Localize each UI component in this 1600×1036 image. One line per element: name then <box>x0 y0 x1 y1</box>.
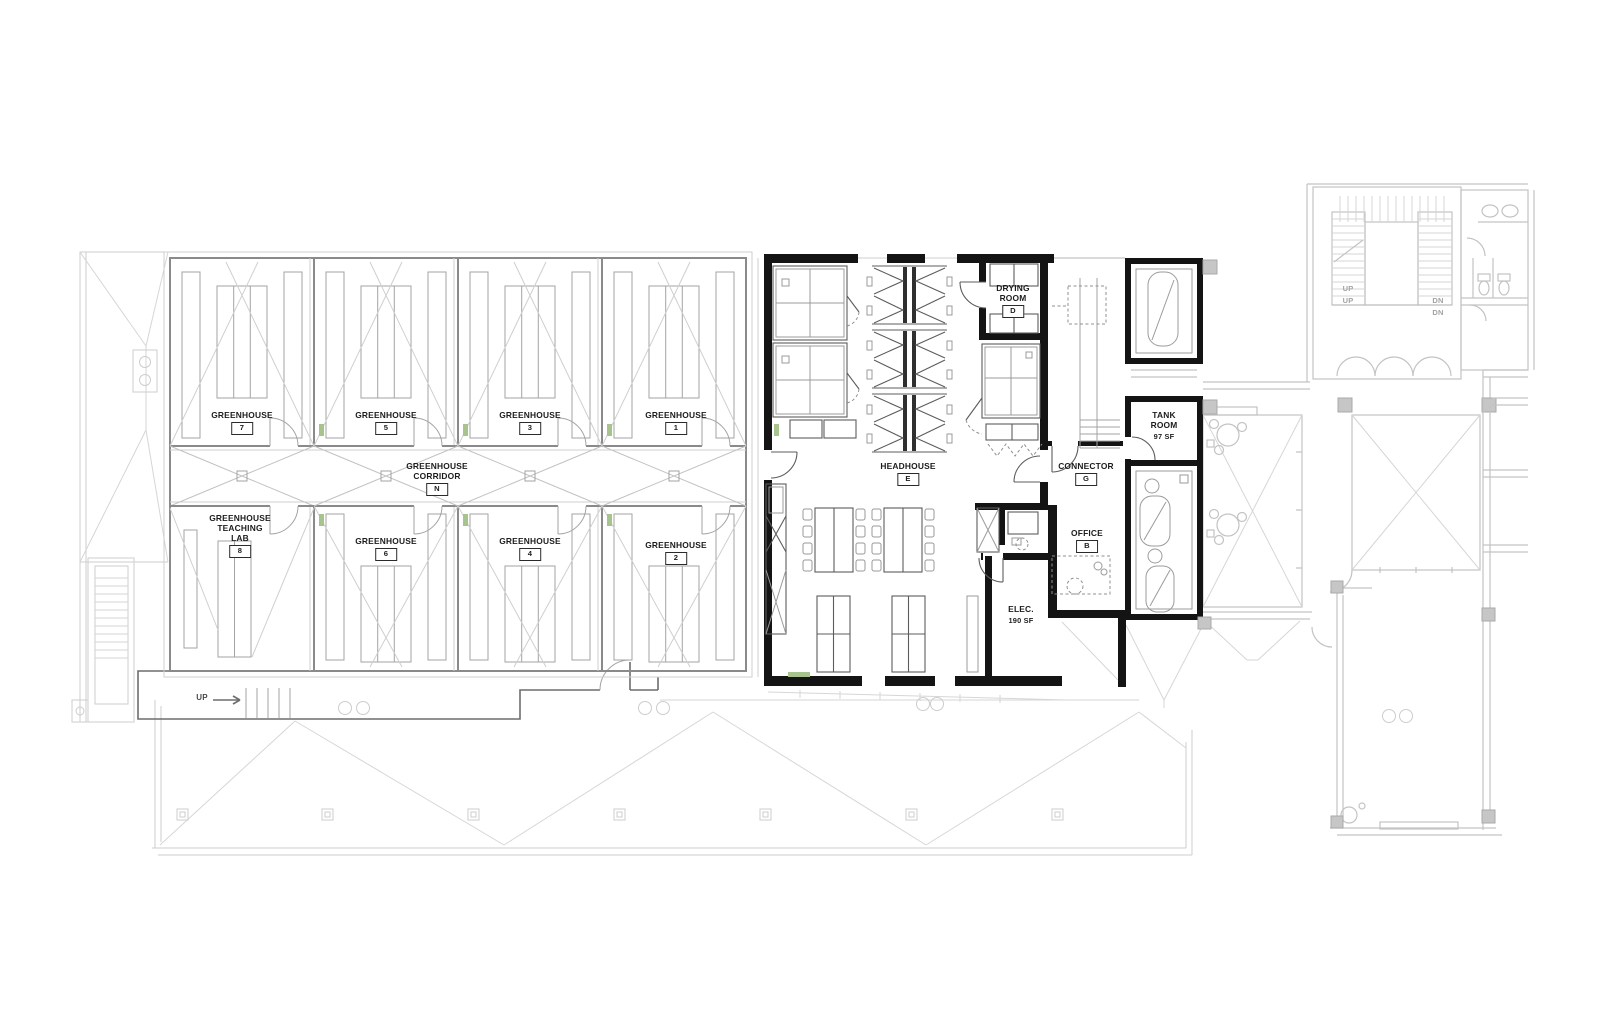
room-tag: 7 <box>231 422 253 435</box>
up-arrow <box>213 696 240 704</box>
room-label-greenhouse-5: GREENHOUSE 5 <box>355 410 417 435</box>
room-label-greenhouse-corridor: GREENHOUSE CORRIDOR N <box>406 461 468 496</box>
room-tag: 5 <box>375 422 397 435</box>
stair-label-up-2: UP <box>1343 296 1354 306</box>
room-name: GREENHOUSE <box>499 410 561 420</box>
room-name: CONNECTOR <box>1058 461 1114 471</box>
room-name: GREENHOUSE <box>209 513 271 523</box>
closet-equipment <box>977 508 1038 552</box>
stair-label-dn-2: DN <box>1432 308 1443 318</box>
room-area: 190 SF <box>1008 616 1034 626</box>
room-name: ROOM <box>996 293 1029 303</box>
room-name: OFFICE <box>1071 528 1103 538</box>
atrium-room <box>1203 407 1302 660</box>
room-tag: E <box>897 473 919 486</box>
room-name: TANK <box>1151 410 1178 420</box>
expansion-joint <box>752 258 758 677</box>
existing-building-right <box>1062 181 1534 835</box>
room-label-drying-room: DRYING ROOM D <box>996 283 1029 318</box>
large-room-southeast <box>1330 581 1502 835</box>
room-name: GREENHOUSE <box>211 410 273 420</box>
seating-tables <box>803 508 934 572</box>
headhouse-doors <box>771 282 1078 582</box>
room-name: CORRIDOR <box>406 471 468 481</box>
room-name: GREENHOUSE <box>645 540 707 550</box>
column-markers <box>177 809 1063 820</box>
floor-plan-canvas: GREENHOUSE 7 GREENHOUSE 5 GREENHOUSE 3 G… <box>0 0 1600 1036</box>
room-label-teaching-lab: GREENHOUSE TEACHING LAB 8 <box>209 513 271 558</box>
room-label-greenhouse-7: GREENHOUSE 7 <box>211 410 273 435</box>
stairwell <box>1307 181 1461 382</box>
work-tables <box>817 596 925 672</box>
open-room-east <box>1302 398 1528 830</box>
service-wing <box>1123 260 1217 629</box>
stair-label-dn-1: DN <box>1432 296 1443 306</box>
existing-roof-left <box>72 252 168 722</box>
walkway-south <box>138 660 658 719</box>
room-tag: 2 <box>665 552 687 565</box>
room-label-greenhouse-6: GREENHOUSE 6 <box>355 536 417 561</box>
room-name: GREENHOUSE <box>645 410 707 420</box>
room-tag: 3 <box>519 422 541 435</box>
room-label-greenhouse-3: GREENHOUSE 3 <box>499 410 561 435</box>
room-name: HEADHOUSE <box>880 461 935 471</box>
room-label-greenhouse-1: GREENHOUSE 1 <box>645 410 707 435</box>
room-tag: B <box>1076 540 1098 553</box>
room-label-elec: ELEC. 190 SF <box>1008 604 1034 626</box>
room-name: GREENHOUSE <box>499 536 561 546</box>
room-label-office: OFFICE B <box>1071 528 1103 553</box>
stair-label-up-1: UP <box>1343 284 1354 294</box>
room-tag: D <box>1002 305 1024 318</box>
room-tag: G <box>1075 473 1097 486</box>
room-name: ROOM <box>1151 420 1178 430</box>
room-name: GREENHOUSE <box>355 536 417 546</box>
room-name: TEACHING <box>209 523 271 533</box>
room-area: 97 SF <box>1151 432 1178 442</box>
room-label-greenhouse-4: GREENHOUSE 4 <box>499 536 561 561</box>
room-name: GREENHOUSE <box>406 461 468 471</box>
room-tag: 1 <box>665 422 687 435</box>
room-tag: 8 <box>229 545 251 558</box>
room-name: LAB <box>209 533 271 543</box>
greenhouse-block <box>164 252 779 677</box>
existing-roof-lower <box>152 698 1192 856</box>
roof-transition-middle <box>1062 622 1203 708</box>
room-name: GREENHOUSE <box>355 410 417 420</box>
growth-chamber-center <box>966 344 1042 456</box>
restrooms <box>1461 184 1534 398</box>
room-tag: 6 <box>375 548 397 561</box>
room-name: ELEC. <box>1008 604 1034 614</box>
office-desk <box>1052 556 1110 594</box>
room-label-tank-room: TANK ROOM 97 SF <box>1151 410 1178 442</box>
stair-label-up-walkway: UP <box>196 693 208 703</box>
room-label-headhouse: HEADHOUSE E <box>880 461 935 486</box>
room-tag: 4 <box>519 548 541 561</box>
room-tag: N <box>426 483 448 496</box>
room-label-greenhouse-2: GREENHOUSE 2 <box>645 540 707 565</box>
room-name: DRYING <box>996 283 1029 293</box>
room-label-connector: CONNECTOR G <box>1058 461 1114 486</box>
